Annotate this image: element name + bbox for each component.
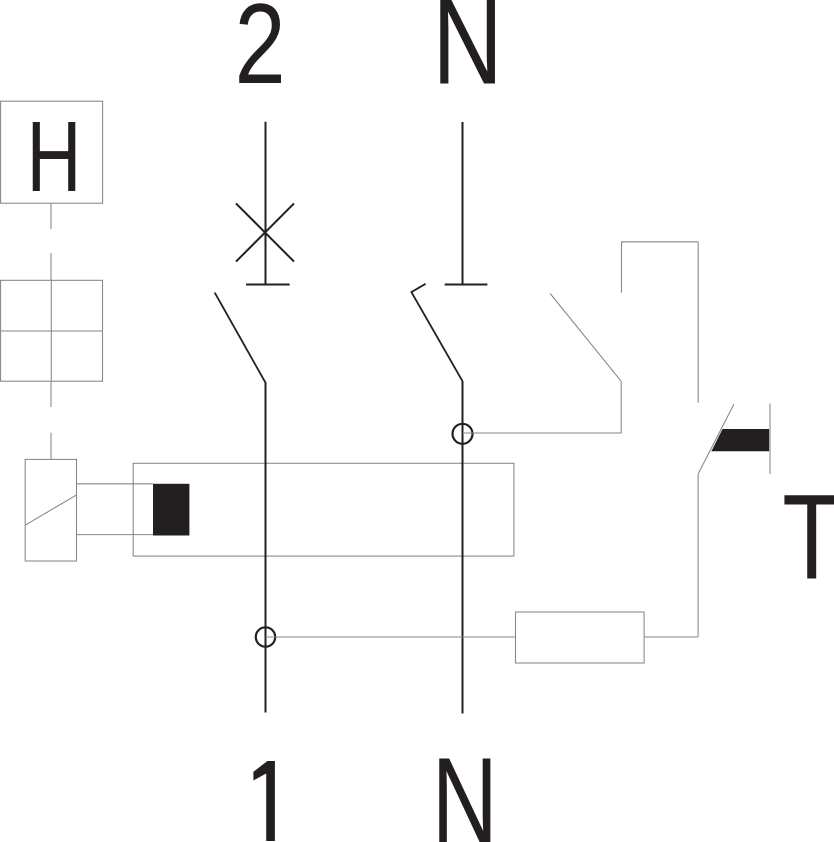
svg-text:N: N xyxy=(432,732,498,842)
svg-text:T: T xyxy=(782,470,834,605)
svg-text:2: 2 xyxy=(235,0,286,107)
svg-text:N: N xyxy=(432,0,503,110)
svg-text:H: H xyxy=(27,100,82,213)
